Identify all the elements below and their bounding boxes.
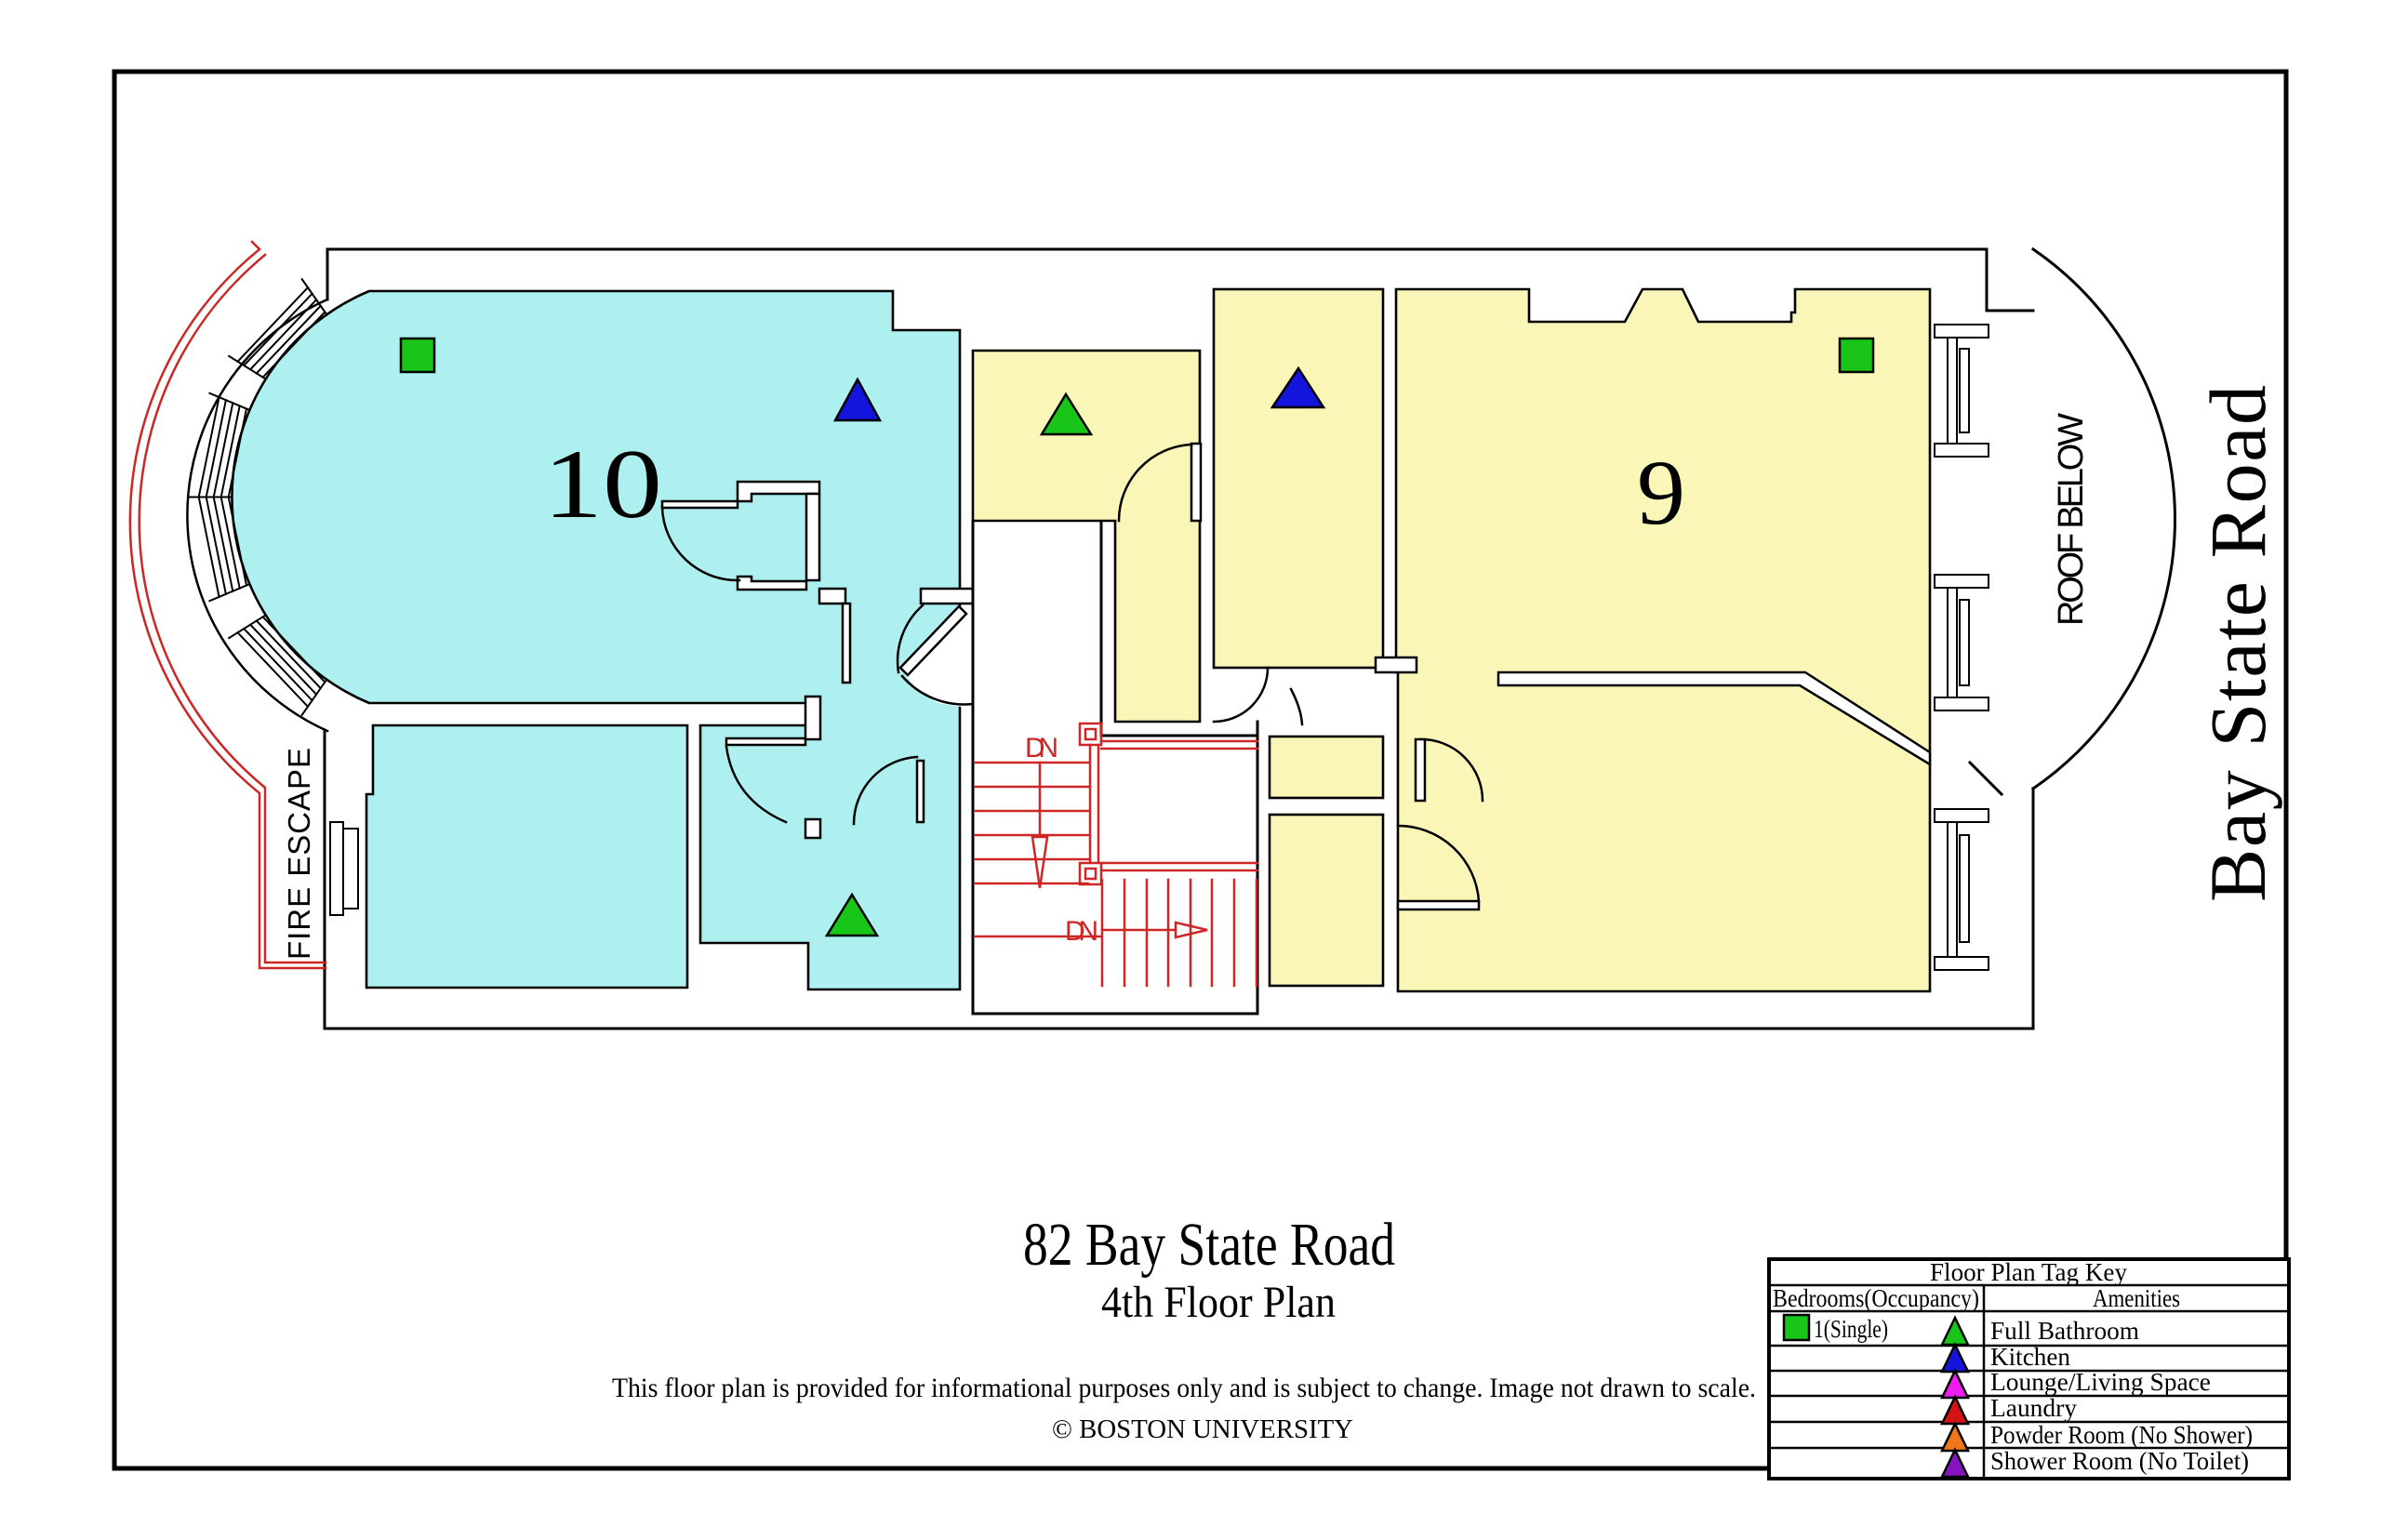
svg-text:Shower Room (No Toilet): Shower Room (No Toilet) (1990, 1447, 2249, 1475)
svg-text:Bedrooms(Occupancy): Bedrooms(Occupancy) (1773, 1284, 1979, 1312)
svg-text:Floor Plan Tag Key: Floor Plan Tag Key (1930, 1258, 2127, 1286)
svg-text:10: 10 (543, 430, 662, 538)
svg-text:Bay State Road: Bay State Road (2193, 385, 2282, 902)
svg-text:4th Floor Plan: 4th Floor Plan (1101, 1278, 1336, 1327)
svg-text:DN: DN (1065, 916, 1098, 947)
svg-text:1(Single): 1(Single) (1814, 1315, 1888, 1343)
svg-text:82 Bay State Road: 82 Bay State Road (1023, 1211, 1395, 1279)
svg-text:Full Bathroom: Full Bathroom (1990, 1317, 2139, 1345)
svg-text:© BOSTON UNIVERSITY: © BOSTON UNIVERSITY (1052, 1414, 1353, 1444)
svg-text:DN: DN (1025, 733, 1058, 763)
svg-text:ROOF BELOW: ROOF BELOW (2052, 410, 2091, 626)
svg-text:FIRE ESCAPE: FIRE ESCAPE (282, 744, 316, 960)
svg-text:Powder Room (No Shower): Powder Room (No Shower) (1990, 1421, 2253, 1449)
svg-text:This floor plan is provided fo: This floor plan is provided for informat… (612, 1373, 1756, 1403)
svg-text:Kitchen: Kitchen (1990, 1343, 2070, 1371)
svg-text:9: 9 (1637, 441, 1685, 544)
svg-text:Amenities: Amenities (2093, 1284, 2180, 1312)
svg-text:Lounge/Living Space: Lounge/Living Space (1990, 1368, 2211, 1396)
svg-text:Laundry: Laundry (1990, 1394, 2078, 1422)
